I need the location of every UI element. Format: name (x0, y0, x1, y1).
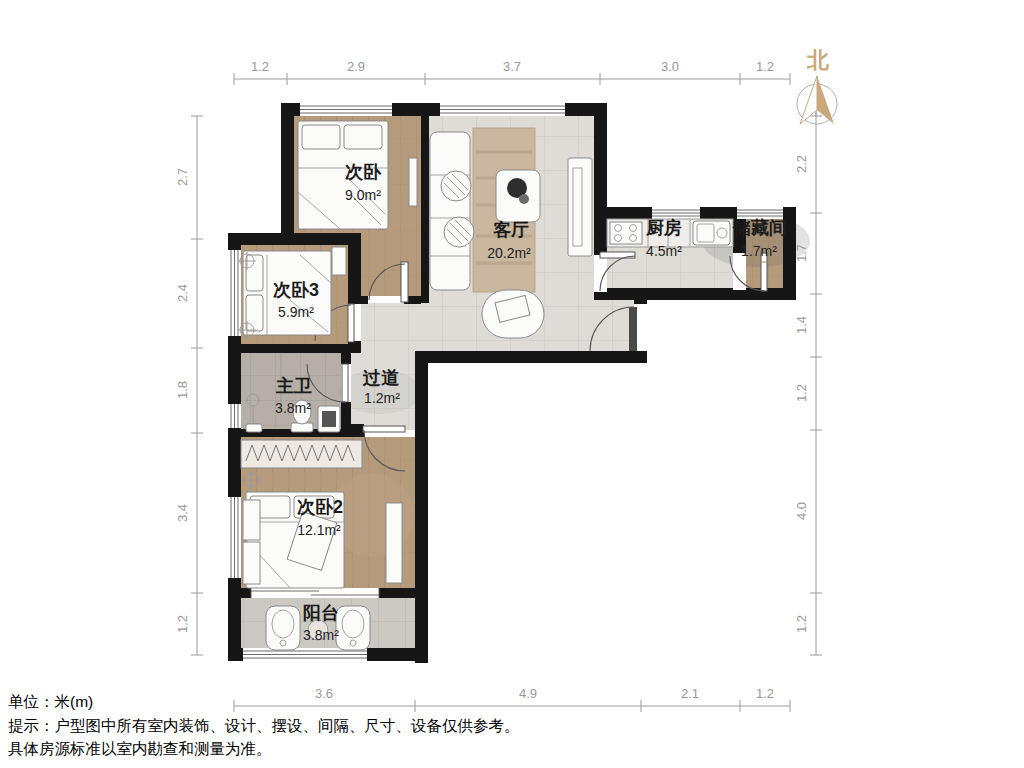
footer-notes: 单位：米(m) 提示：户型图中所有室内装饰、设计、摆设、间隔、尺寸、设备仅供参考… (8, 690, 520, 761)
room-area-balcony: 3.8m² (303, 627, 339, 643)
dim-bottom-3: 1.2 (756, 686, 774, 701)
stove (610, 222, 642, 244)
tv-cabinet (568, 158, 592, 256)
dim-right-1: 1.7 (794, 244, 809, 262)
footer-unit: 单位：米(m) (8, 690, 520, 714)
dim-bottom-2: 2.1 (681, 686, 699, 701)
room-label-bedroom2: 次卧2 (297, 497, 343, 517)
dim-right-3: 1.2 (794, 384, 809, 402)
north-compass: 北 (797, 48, 837, 124)
room-area-bedroom2: 12.1m² (297, 522, 341, 538)
window-living (440, 103, 565, 116)
dim-bottom-1: 4.9 (519, 686, 537, 701)
wardrobe (241, 440, 362, 468)
window-bath (228, 404, 241, 428)
dim-right-4: 4.0 (794, 502, 809, 520)
room-area-bedroom3: 5.9m² (278, 304, 314, 320)
dim-right-2: 1.4 (794, 316, 809, 334)
dim-left-0: 2.7 (175, 168, 190, 186)
sink (693, 221, 730, 245)
dim-left-1: 2.4 (175, 284, 190, 302)
bath-sink (318, 406, 340, 432)
footer-tip-line2: 具体房源标准以室内勘查和测量为准。 (8, 737, 520, 761)
room-label-bath: 主卫 (275, 376, 312, 396)
dimension-left: 2.7 2.4 1.8 3.4 1.2 (175, 116, 203, 655)
dim-top-1: 2.9 (347, 59, 365, 74)
room-area-living: 20.2m² (487, 245, 531, 261)
north-label: 北 (806, 48, 830, 73)
room-label-living: 客厅 (492, 220, 529, 240)
coffee-table (496, 170, 540, 222)
room-area-kitchen: 4.5m² (646, 243, 682, 259)
window-balcony-slider (251, 588, 379, 598)
dim-right-0: 2.2 (794, 155, 809, 173)
floorplan-drawing: 次卧 9.0m² 客厅 20.2m² 厨房 4.5m² 储藏间 1.7m² 次卧… (0, 0, 1024, 768)
bottom-seat (482, 290, 544, 338)
floorplan-page: { "title": "户型图", "north": { "label": "北… (0, 0, 1024, 768)
dim-left-2: 1.8 (175, 381, 190, 399)
dim-top-0: 1.2 (251, 59, 269, 74)
dim-left-4: 1.2 (175, 615, 190, 633)
room-label-kitchen: 厨房 (645, 218, 682, 238)
room-area-hallway: 1.2m² (364, 390, 400, 406)
room-area-bath: 3.8m² (275, 400, 311, 416)
laundry-tub (336, 606, 370, 650)
compass-needle-left (800, 76, 817, 124)
room-label-hallway: 过道 (362, 368, 400, 388)
dim-right-5: 1.2 (794, 615, 809, 633)
dimension-right: 2.2 1.7 1.4 1.2 4.0 1.2 (794, 112, 822, 655)
compass-needle-right (817, 76, 834, 124)
window-bedroom1 (300, 103, 392, 116)
room-label-storage: 储藏间 (732, 218, 787, 238)
room-area-storage: 1.7m² (741, 243, 777, 259)
room-label-balcony: 阳台 (303, 603, 339, 623)
window-bedroom3 (228, 250, 241, 336)
room-label-bedroom1: 次卧 (345, 162, 382, 182)
dim-top-4: 1.2 (756, 59, 774, 74)
room-area-bedroom1: 9.0m² (345, 187, 381, 203)
dim-top-3: 3.0 (661, 59, 679, 74)
dimension-top: 1.2 2.9 3.7 3.0 1.2 (234, 59, 790, 85)
room-label-bedroom3: 次卧3 (273, 280, 319, 300)
footer-tip-line1: 提示：户型图中所有室内装饰、设计、摆设、间隔、尺寸、设备仅供参考。 (8, 714, 520, 738)
window-bedroom2 (228, 497, 241, 578)
dim-top-2: 3.7 (503, 59, 521, 74)
dim-left-3: 3.4 (175, 504, 190, 522)
laundry-tub (266, 606, 300, 650)
